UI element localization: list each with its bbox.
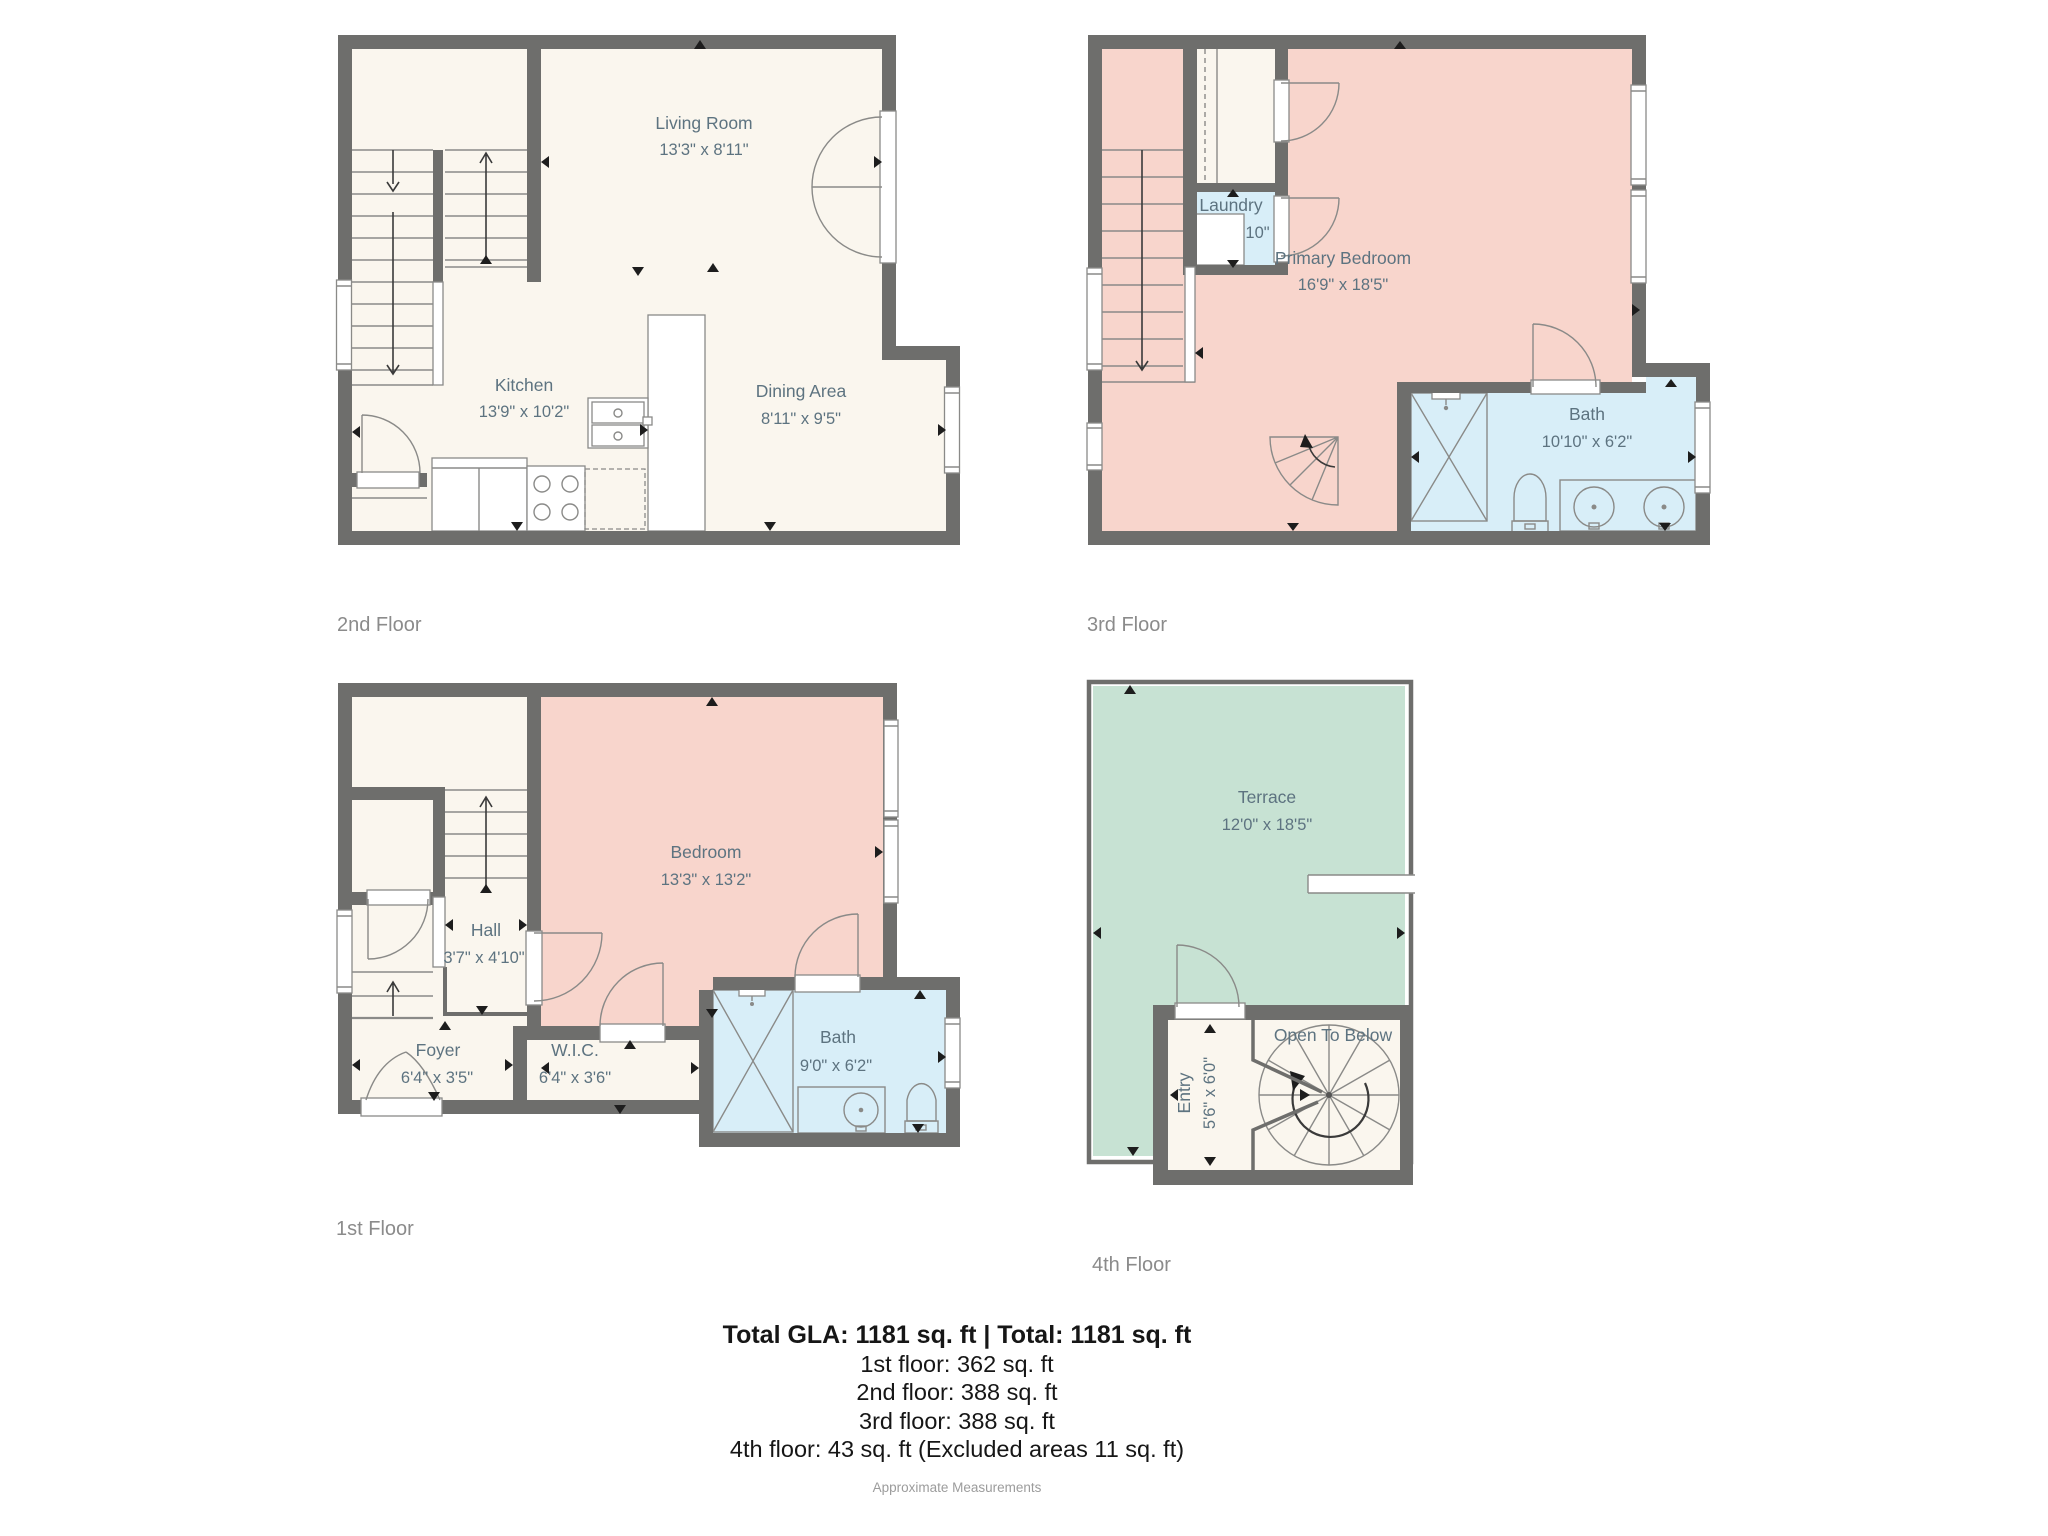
room-name-kitchen: Kitchen	[495, 375, 553, 395]
terrace-notch	[1308, 875, 1415, 893]
floor-label-4th: 4th Floor	[1092, 1254, 1171, 1277]
room-dims-bedroom: 13'3" x 13'2"	[661, 871, 752, 889]
floor-area-line: 3rd floor: 388 sq. ft	[357, 1407, 1557, 1435]
floor-plan-3rd: 3'2" x 2'10"	[1080, 28, 1720, 552]
room-name-foyer: Foyer	[416, 1040, 461, 1060]
floor-plan-2nd: Living Room 13'3" x 8'11" Kitchen 13'9" …	[330, 28, 970, 552]
room-dims-primary-bedroom: 16'9" x 18'5"	[1298, 276, 1389, 294]
french-door	[880, 111, 896, 263]
window	[1087, 423, 1102, 470]
floor-label-1st: 1st Floor	[336, 1218, 414, 1241]
room-name-terrace: Terrace	[1238, 787, 1296, 807]
stair-railing	[433, 282, 443, 385]
room-dims-living: 13'3" x 8'11"	[659, 141, 748, 159]
room-dims-bath3: 10'10" x 6'2"	[1542, 433, 1633, 451]
open-to-below-label: Open To Below	[1274, 1025, 1393, 1045]
window	[945, 1018, 960, 1088]
room-dims-terrace: 12'0" x 18'5"	[1222, 816, 1313, 834]
window	[337, 280, 352, 370]
floor-label-3rd: 3rd Floor	[1087, 614, 1167, 637]
room-name-living: Living Room	[655, 113, 752, 133]
room-name-bedroom: Bedroom	[670, 842, 741, 862]
room-dims-bath1: 9'0" x 6'2"	[800, 1057, 872, 1075]
window	[884, 820, 898, 903]
window	[1631, 85, 1646, 185]
floor-plan-1st: Bedroom 13'3" x 13'2" Hall 3'7" x 4'10" …	[330, 676, 970, 1162]
wic-door-leaf	[600, 1024, 665, 1042]
room-dims-foyer: 6'4" x 3'5"	[401, 1069, 473, 1087]
approximate-measurements-note: Approximate Measurements	[357, 1480, 1557, 1495]
measurement-summary: Total GLA: 1181 sq. ft | Total: 1181 sq.…	[357, 1320, 1557, 1495]
room-name-bath1: Bath	[820, 1027, 856, 1047]
stove-icon	[527, 466, 585, 531]
bath-door-leaf	[1531, 380, 1600, 394]
window	[337, 910, 352, 993]
total-gla: Total GLA: 1181 sq. ft | Total: 1181 sq.…	[357, 1320, 1557, 1350]
room-dims-dining: 8'11" x 9'5"	[761, 410, 841, 428]
room-name-wic: W.I.C.	[551, 1040, 599, 1060]
stair-railing	[1185, 267, 1195, 382]
floorplan-page: Living Room 13'3" x 8'11" Kitchen 13'9" …	[0, 0, 2048, 1536]
door-leaf	[357, 472, 419, 488]
floor-area-line: 1st floor: 362 sq. ft	[357, 1350, 1557, 1378]
room-name-hall: Hall	[471, 920, 501, 940]
room-name-bath3: Bath	[1569, 404, 1605, 424]
window	[945, 387, 960, 473]
window	[884, 720, 898, 817]
bedroom-door-leaf	[526, 931, 542, 1005]
room-dims-kitchen: 13'9" x 10'2"	[479, 403, 570, 421]
window	[1631, 190, 1646, 283]
sink-icon	[588, 398, 652, 448]
floor-plan-4th: Terrace 12'0" x 18'5" Open To Below Entr…	[1080, 676, 1420, 1196]
room-name-primary-bedroom: Primary Bedroom	[1275, 248, 1411, 268]
closet-door-leaf	[367, 890, 430, 905]
floor-area-line: 4th floor: 43 sq. ft (Excluded areas 11 …	[357, 1435, 1557, 1463]
bath-door-leaf	[795, 975, 860, 992]
floor-label-2nd: 2nd Floor	[337, 614, 422, 637]
kitchen-island	[648, 315, 705, 531]
room-dims-hall: 3'7" x 4'10"	[443, 949, 524, 967]
window	[1695, 402, 1710, 493]
room-name-laundry: Laundry	[1199, 195, 1262, 215]
front-door-leaf	[361, 1098, 442, 1116]
window	[1087, 268, 1102, 370]
room-name-entry: Entry	[1174, 1072, 1194, 1113]
room-name-dining: Dining Area	[756, 381, 847, 401]
room-dims-entry: 5'6" x 6'0"	[1201, 1057, 1219, 1129]
room-dims-wic: 6'4" x 3'6"	[539, 1069, 611, 1087]
closet-door-leaf	[1274, 80, 1289, 142]
floor-area-line: 2nd floor: 388 sq. ft	[357, 1378, 1557, 1406]
